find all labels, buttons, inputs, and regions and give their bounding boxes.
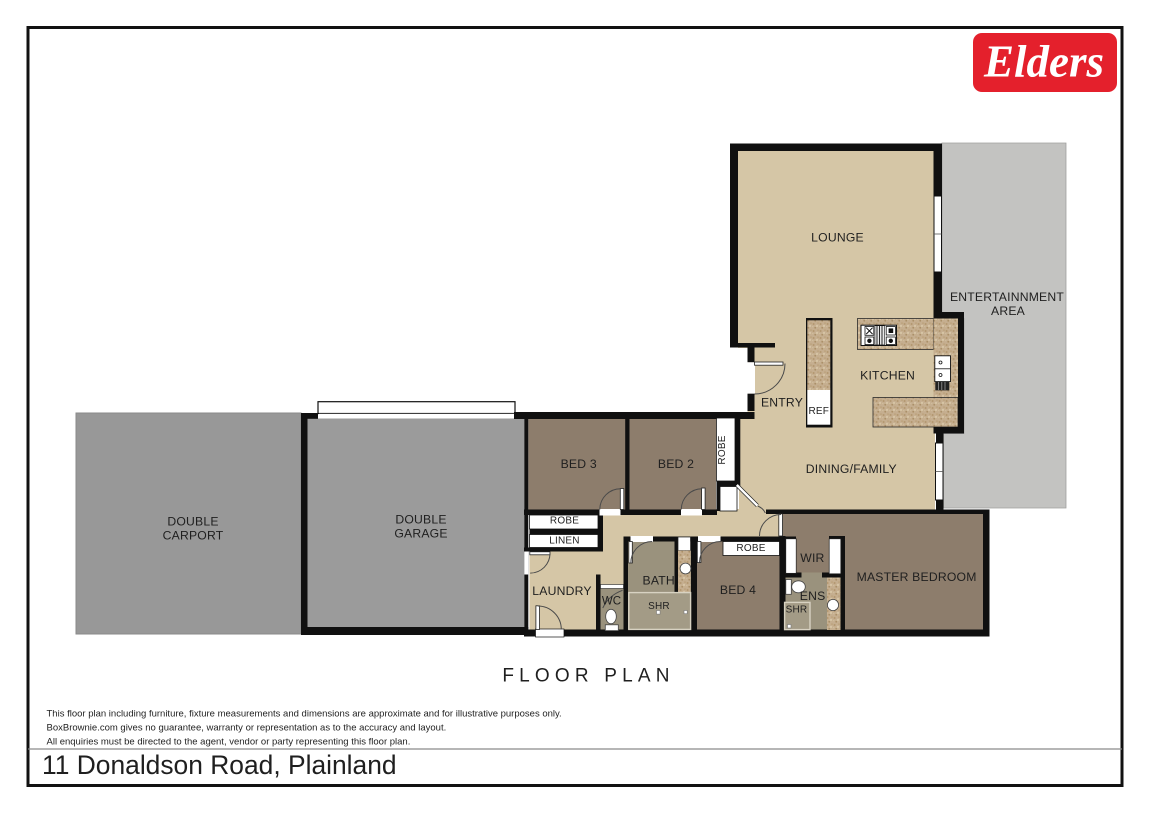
- svg-text:LAUNDRY: LAUNDRY: [532, 584, 591, 598]
- svg-text:BoxBrownie.com gives no guaran: BoxBrownie.com gives no guarantee, warra…: [47, 723, 447, 734]
- svg-text:WIR: WIR: [800, 551, 824, 565]
- svg-text:DINING/FAMILY: DINING/FAMILY: [806, 462, 897, 476]
- svg-text:ENS: ENS: [800, 589, 826, 603]
- svg-text:This floor plan including furn: This floor plan including furniture, fix…: [47, 709, 562, 720]
- svg-text:SHR: SHR: [648, 601, 670, 612]
- svg-text:AREA: AREA: [991, 304, 1026, 318]
- svg-text:SHR: SHR: [786, 605, 808, 616]
- svg-text:ROBE: ROBE: [717, 435, 728, 464]
- svg-text:BED 2: BED 2: [658, 457, 694, 471]
- svg-text:GARAGE: GARAGE: [394, 527, 447, 541]
- svg-text:LOUNGE: LOUNGE: [811, 231, 864, 245]
- svg-text:FLOOR PLAN: FLOOR PLAN: [502, 666, 674, 687]
- svg-text:DOUBLE: DOUBLE: [167, 515, 218, 529]
- svg-text:BED 4: BED 4: [720, 583, 756, 597]
- svg-text:ENTRY: ENTRY: [761, 396, 803, 410]
- svg-text:CARPORT: CARPORT: [163, 529, 224, 543]
- svg-text:BED 3: BED 3: [561, 457, 597, 471]
- svg-text:REF: REF: [808, 406, 829, 417]
- svg-text:ENTERTAINNMENT: ENTERTAINNMENT: [950, 290, 1064, 304]
- svg-text:MASTER BEDROOM: MASTER BEDROOM: [857, 570, 977, 584]
- svg-text:LINEN: LINEN: [549, 536, 579, 547]
- svg-text:Elders: Elders: [983, 37, 1104, 87]
- svg-text:All enquiries must be directed: All enquiries must be directed to the ag…: [47, 737, 411, 748]
- svg-text:KITCHEN: KITCHEN: [860, 369, 915, 383]
- svg-text:11 Donaldson Road, Plainland: 11 Donaldson Road, Plainland: [42, 750, 397, 780]
- svg-text:ROBE: ROBE: [550, 516, 579, 527]
- svg-text:WC: WC: [602, 596, 621, 608]
- svg-text:DOUBLE: DOUBLE: [395, 513, 446, 527]
- svg-text:BATH: BATH: [642, 574, 674, 588]
- svg-text:ROBE: ROBE: [736, 543, 765, 554]
